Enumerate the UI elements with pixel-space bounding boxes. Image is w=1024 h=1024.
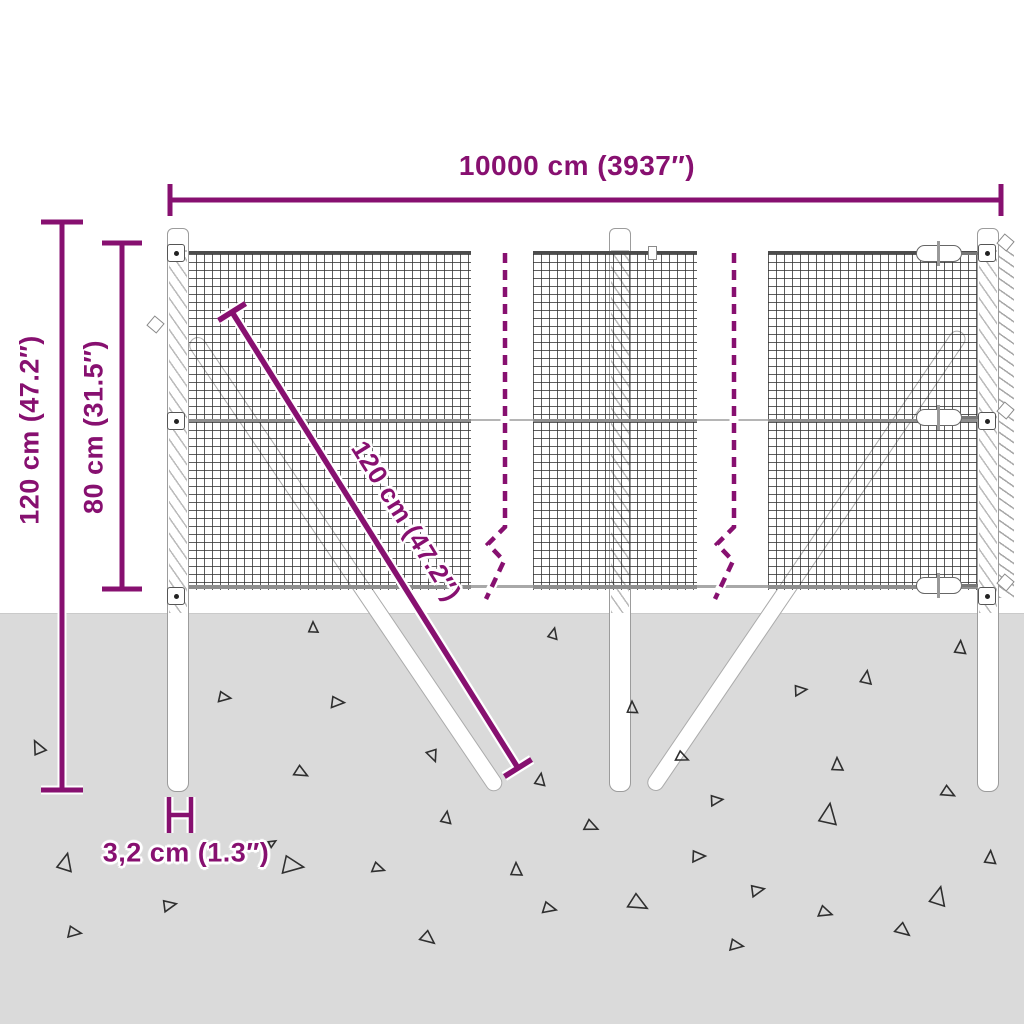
break-line-left bbox=[486, 253, 505, 599]
fence-dimension-diagram: 10000 cm (3937″) 120 cm (47.2″) 80 cm (3… bbox=[0, 0, 1024, 1024]
post-width-dimension-label: 3,2 cm (1.3″) bbox=[103, 838, 270, 869]
post-width-marker bbox=[169, 797, 191, 833]
break-line-right bbox=[715, 253, 734, 599]
width-dimension-label: 10000 cm (3937″) bbox=[459, 150, 695, 182]
diagonal-dimension-line bbox=[218, 304, 531, 777]
mesh-height-dimension-label: 80 cm (31.5″) bbox=[79, 340, 110, 514]
total-height-dimension-label: 120 cm (47.2″) bbox=[15, 335, 46, 525]
total-height-dimension-line bbox=[41, 222, 83, 790]
width-dimension-line bbox=[170, 184, 1001, 216]
soil-triangles bbox=[30, 622, 997, 952]
